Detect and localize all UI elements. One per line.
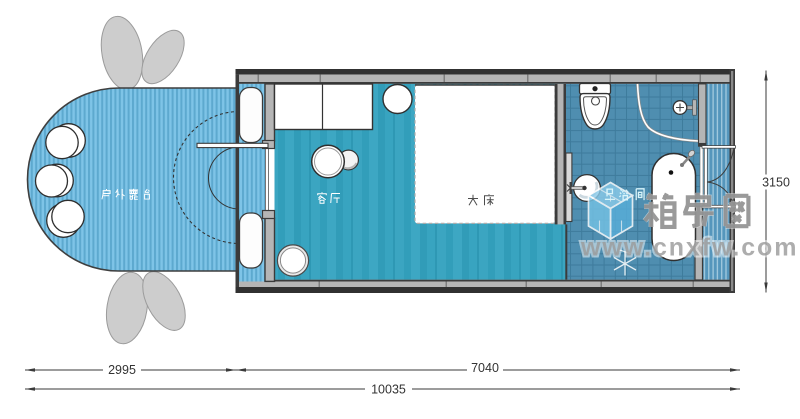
svg-text:7040: 7040 [471,361,499,375]
svg-text:3150: 3150 [762,176,790,190]
svg-text:10035: 10035 [371,383,406,397]
svg-text:www.cnxfw.com: www.cnxfw.com [580,234,798,262]
svg-text:2995: 2995 [108,363,136,377]
